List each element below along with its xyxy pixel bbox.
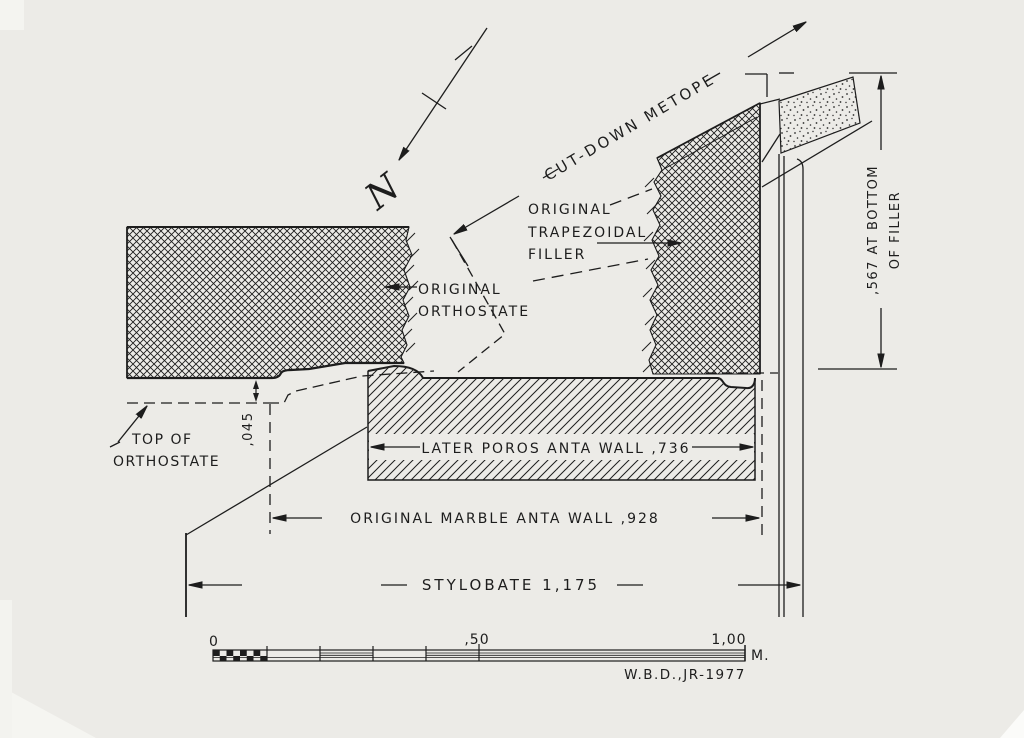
label-orthostate-line1: ORIGINAL [418,282,502,298]
dim-filler-height-text-line1: ,567 AT BOTTOM [866,165,881,295]
label-top-orthostate-line1: TOP OF [131,432,193,448]
scale-label-half: ,50 [464,632,489,648]
scale-label-unit: M. [751,648,770,664]
credit-signature: W.B.D.,JR-1977 [624,667,746,683]
label-filler-line1: ORIGINAL [528,202,612,218]
scale-label-zero: 0 [209,634,219,650]
label-top-orthostate-line2: ORTHOSTATE [113,454,220,470]
orthostate-block [127,227,419,378]
dim-filler-height-text-line2: OF FILLER [888,191,903,269]
dim-stylobate-text: STYLOBATE 1,175 [422,576,600,594]
scale-label-one: 1,00 [711,632,746,648]
dim-poros-wall-text: LATER POROS ANTA WALL ,736 [421,441,690,457]
dim-marble-wall-text: ORIGINAL MARBLE ANTA WALL ,928 [350,511,660,527]
drawing-canvas: N [0,0,1024,738]
poros-wall-block [368,366,755,480]
label-filler-line3: FILLER [528,247,586,263]
architectural-drawing-page: N [0,0,1024,738]
dim-orthostate-offset-text: ,045 [241,412,256,447]
label-filler-line2: TRAPEZOIDAL [527,225,647,241]
label-orthostate-line2: ORTHOSTATE [418,304,530,320]
